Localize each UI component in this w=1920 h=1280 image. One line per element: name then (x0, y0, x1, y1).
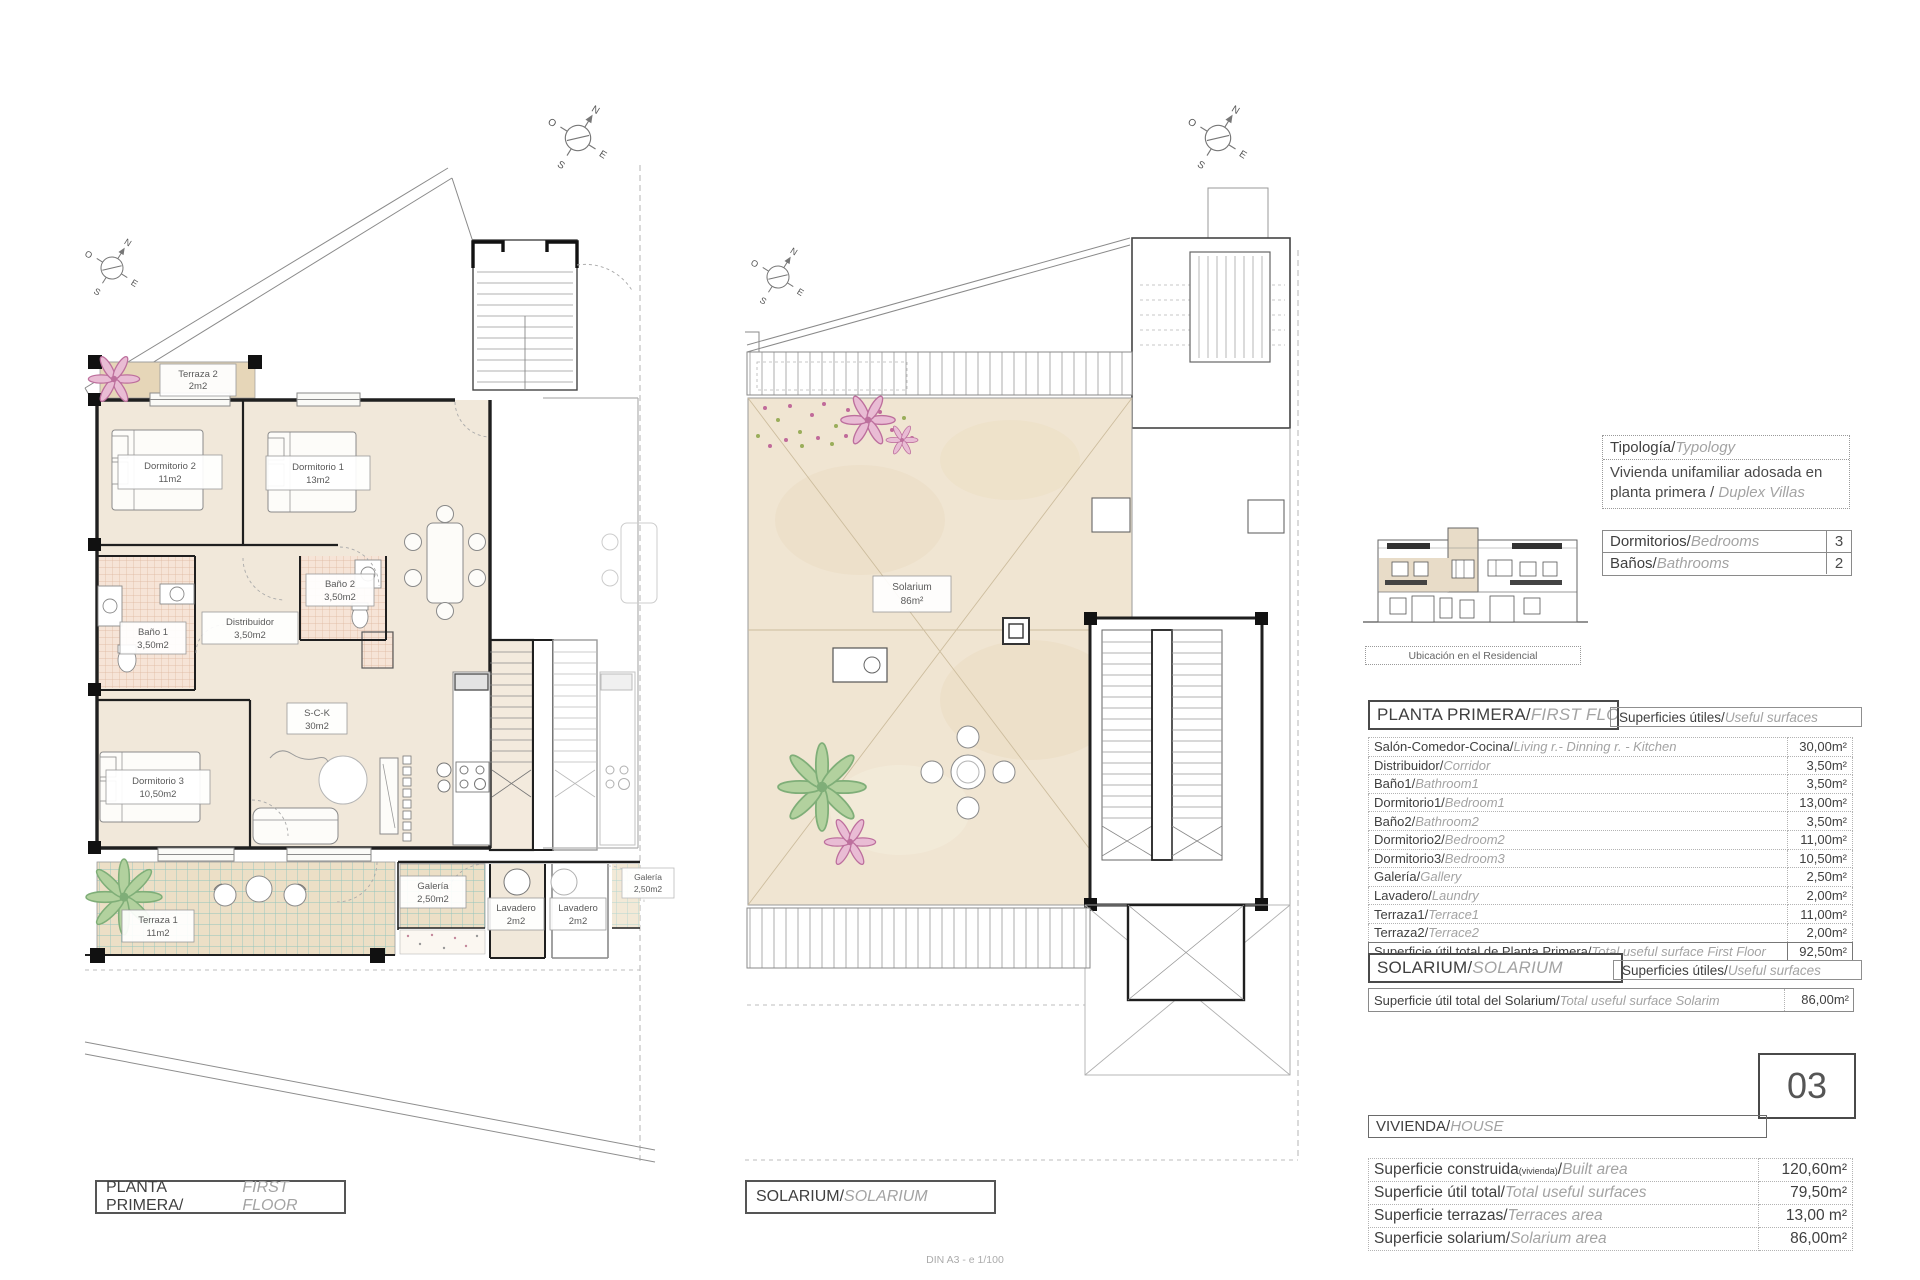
svg-text:S: S (758, 295, 768, 307)
svg-text:E: E (1237, 149, 1249, 162)
typology-label: Tipología/Typology (1603, 436, 1849, 460)
svg-text:Lavadero: Lavadero (496, 903, 536, 914)
svg-text:E: E (597, 149, 609, 162)
room-label-galeria-neighbor: Galería 2,50m2 (622, 868, 674, 898)
table-row: Terraza1/Terrace111,00m² (1369, 905, 1853, 924)
svg-text:10,50m2: 10,50m2 (140, 789, 177, 800)
first-floor-surfaces-table: Salón-Comedor-Cocina/Living r.- Dinning … (1368, 737, 1852, 961)
svg-text:Solarium: Solarium (892, 582, 931, 593)
table-row: Lavadero/Laundry2,00m² (1369, 886, 1853, 905)
svg-text:2m2: 2m2 (569, 916, 587, 927)
skylight (1003, 618, 1029, 644)
svg-text:2m2: 2m2 (189, 381, 207, 392)
solarium-title: SOLARIUM/ (756, 1188, 844, 1206)
room-label-lavadero1: Lavadero 2m2 (488, 898, 544, 930)
room-label-dormitorio1: Dormitorio 1 13m2 (266, 456, 370, 490)
svg-text:S-C-K: S-C-K (304, 708, 331, 719)
svg-text:Lavadero: Lavadero (558, 903, 598, 914)
first-floor-surfaces-label: Superficies útiles/Useful surfaces (1610, 707, 1862, 727)
compass-rose-top-2: N E S O (1169, 88, 1267, 188)
svg-text:3,50m2: 3,50m2 (234, 630, 266, 641)
svg-text:E: E (795, 286, 805, 298)
room-label-dormitorio3: Dormitorio 3 10,50m2 (106, 770, 210, 804)
room-label-bano1: Baño 1 3,50m2 (120, 622, 186, 654)
svg-text:Dormitorio 3: Dormitorio 3 (132, 776, 184, 787)
solarium-total-row: Superficie útil total del Solarium/Total… (1368, 988, 1854, 1012)
solarium-surfaces-label: Superficies útiles/Useful surfaces (1613, 960, 1862, 980)
svg-text:Galería: Galería (417, 881, 449, 892)
svg-text:13m2: 13m2 (306, 475, 330, 486)
svg-text:86m²: 86m² (901, 596, 924, 607)
svg-text:Baño 2: Baño 2 (325, 579, 355, 590)
svg-text:30m2: 30m2 (305, 721, 329, 732)
room-label-dormitorio2: Dormitorio 2 11m2 (118, 455, 222, 489)
table-row: Dormitorio2/Bedroom211,00m² (1369, 830, 1853, 849)
table-row: Salón-Comedor-Cocina/Living r.- Dinning … (1369, 738, 1853, 757)
svg-text:Dormitorio 1: Dormitorio 1 (292, 462, 344, 473)
svg-text:O: O (1186, 117, 1199, 131)
first-floor-title-box: PLANTA PRIMERA/FIRST FLOOR (95, 1180, 346, 1214)
compass-rose-small-2: N E S O (735, 231, 822, 321)
svg-text:Terraza 2: Terraza 2 (178, 369, 218, 380)
table-row: Baños/Bathrooms 2 (1603, 553, 1851, 574)
bedrooms-count: 3 (1826, 531, 1851, 552)
table-row: Distribuidor/Corridor3,50m² (1369, 756, 1853, 775)
first-floor-table-header: PLANTA PRIMERA/FIRST FLOOR (1368, 700, 1619, 730)
room-label-terraza1: Terraza 1 11m2 (122, 910, 194, 942)
room-label-lavadero2: Lavadero 2m2 (550, 898, 606, 930)
unit-number: 03 (1758, 1053, 1856, 1119)
table-row: Superficie construida(vivienda)/Built ar… (1369, 1159, 1853, 1182)
table-row: Superficie terrazas/Terraces area13,00 m… (1369, 1205, 1853, 1228)
svg-text:3,50m2: 3,50m2 (324, 592, 356, 603)
svg-text:N: N (788, 246, 799, 258)
first-floor-title: PLANTA PRIMERA/ (106, 1179, 242, 1215)
solarium-table-header: SOLARIUM/SOLARIUM (1368, 953, 1623, 983)
pergola-bottom (747, 908, 1090, 968)
washer-2 (551, 869, 577, 895)
table-row: Baño1/Bathroom13,50m² (1369, 775, 1853, 794)
lower-roof-lines (1085, 905, 1290, 1075)
table-row: Dormitorio1/Bedroom113,00m² (1369, 793, 1853, 812)
svg-text:O: O (83, 248, 94, 260)
table-row: Superficie útil total/Total useful surfa… (1369, 1182, 1853, 1205)
svg-text:11m2: 11m2 (158, 474, 181, 485)
first-floor-plan: Terraza 2 2m2 Dormitorio 2 11m2 Dormitor… (60, 80, 700, 1220)
location-caption: Ubicación en el Residencial (1365, 646, 1581, 665)
table-row: Baño2/Bathroom23,50m² (1369, 812, 1853, 831)
sofa (253, 808, 338, 844)
svg-text:2,50m2: 2,50m2 (417, 894, 449, 905)
svg-text:S: S (1195, 159, 1207, 172)
svg-text:Baño 1: Baño 1 (138, 627, 168, 638)
gravel-strip (400, 930, 485, 954)
table-row: Terraza2/Terrace22,00m² (1369, 923, 1853, 942)
svg-text:O: O (546, 117, 559, 131)
room-label-terraza2: Terraza 2 2m2 (160, 364, 236, 396)
table-row: Dormitorios/Bedrooms 3 (1603, 531, 1851, 553)
plan-sheet: Terraza 2 2m2 Dormitorio 2 11m2 Dormitor… (0, 0, 1920, 1280)
typology-box: Tipología/Typology Vivienda unifamiliar … (1602, 435, 1850, 509)
svg-text:N: N (589, 104, 601, 117)
vivienda-table: Superficie construida(vivienda)/Built ar… (1368, 1158, 1852, 1251)
svg-text:E: E (129, 277, 139, 289)
svg-text:Dormitorio 2: Dormitorio 2 (144, 461, 196, 472)
compass-rose-top: N E S O (529, 88, 627, 188)
solarium-deck (748, 398, 1132, 905)
typology-value: Vivienda unifamiliar adosada en planta p… (1603, 460, 1849, 503)
table-row: Superficie solarium/Solarium area86,00m² (1369, 1228, 1853, 1251)
solarium-roof-lines (745, 238, 1130, 352)
solarium-title-box: SOLARIUM/SOLARIUM (745, 1180, 996, 1214)
table-row: Galería/Gallery2,50m² (1369, 868, 1853, 887)
svg-text:N: N (122, 237, 133, 249)
bathrooms-count: 2 (1826, 553, 1851, 574)
solarium-stairwell (1084, 612, 1268, 911)
solarium-plan: Solarium 86m² N E S O N E S O (700, 80, 1320, 1220)
exterior-staircase (473, 240, 633, 390)
svg-text:S: S (555, 159, 567, 172)
room-label-bano2: Baño 2 3,50m2 (306, 574, 374, 606)
svg-text:2,50m2: 2,50m2 (634, 884, 663, 894)
room-label-galeria: Galería 2,50m2 (400, 876, 466, 908)
solarium-total-value: 86,00m² (1784, 989, 1853, 1011)
washer-1 (504, 869, 530, 895)
svg-text:11m2: 11m2 (146, 928, 169, 939)
table-row: Dormitorio3/Bedroom310,50m² (1369, 849, 1853, 868)
counts-table: Dormitorios/Bedrooms 3 Baños/Bathrooms 2 (1602, 530, 1852, 576)
svg-text:Galería: Galería (634, 872, 662, 882)
svg-text:Terraza 1: Terraza 1 (138, 915, 178, 926)
room-label-solarium: Solarium 86m² (873, 576, 951, 612)
scale-note: DIN A3 - e 1/100 (880, 1254, 1050, 1266)
bbq-counter (833, 648, 887, 682)
svg-text:S: S (92, 286, 102, 298)
room-label-distribuidor: Distribuidor 3,50m2 (202, 612, 298, 644)
pergola-top (747, 352, 1132, 395)
svg-text:N: N (1229, 104, 1241, 117)
svg-text:2m2: 2m2 (507, 916, 525, 927)
svg-text:Distribuidor: Distribuidor (226, 617, 274, 628)
rug (319, 756, 367, 804)
room-label-sck: S-C-K 30m2 (287, 703, 347, 734)
vivienda-header: VIVIENDA/HOUSE (1368, 1115, 1767, 1138)
svg-text:O: O (749, 257, 760, 269)
compass-rose-small: N E S O (69, 222, 156, 312)
svg-text:3,50m2: 3,50m2 (137, 640, 169, 651)
